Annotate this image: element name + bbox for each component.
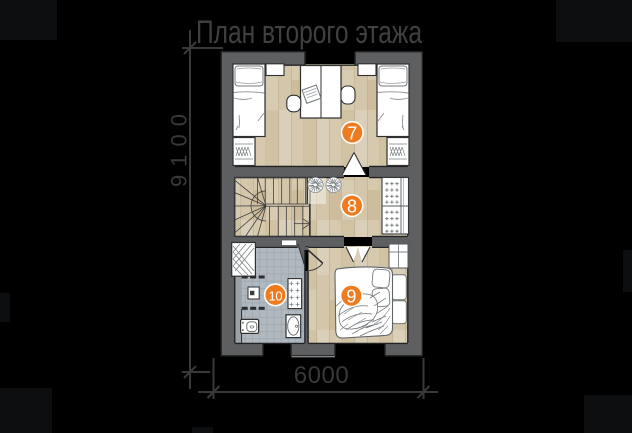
svg-text:8: 8 — [347, 196, 357, 216]
svg-text:План второго этажа: План второго этажа — [196, 14, 422, 50]
svg-text:9: 9 — [346, 287, 356, 307]
svg-text:9100: 9100 — [167, 106, 192, 187]
svg-text:6000: 6000 — [294, 362, 349, 389]
svg-text:7: 7 — [347, 123, 357, 143]
svg-text:10: 10 — [268, 288, 282, 303]
